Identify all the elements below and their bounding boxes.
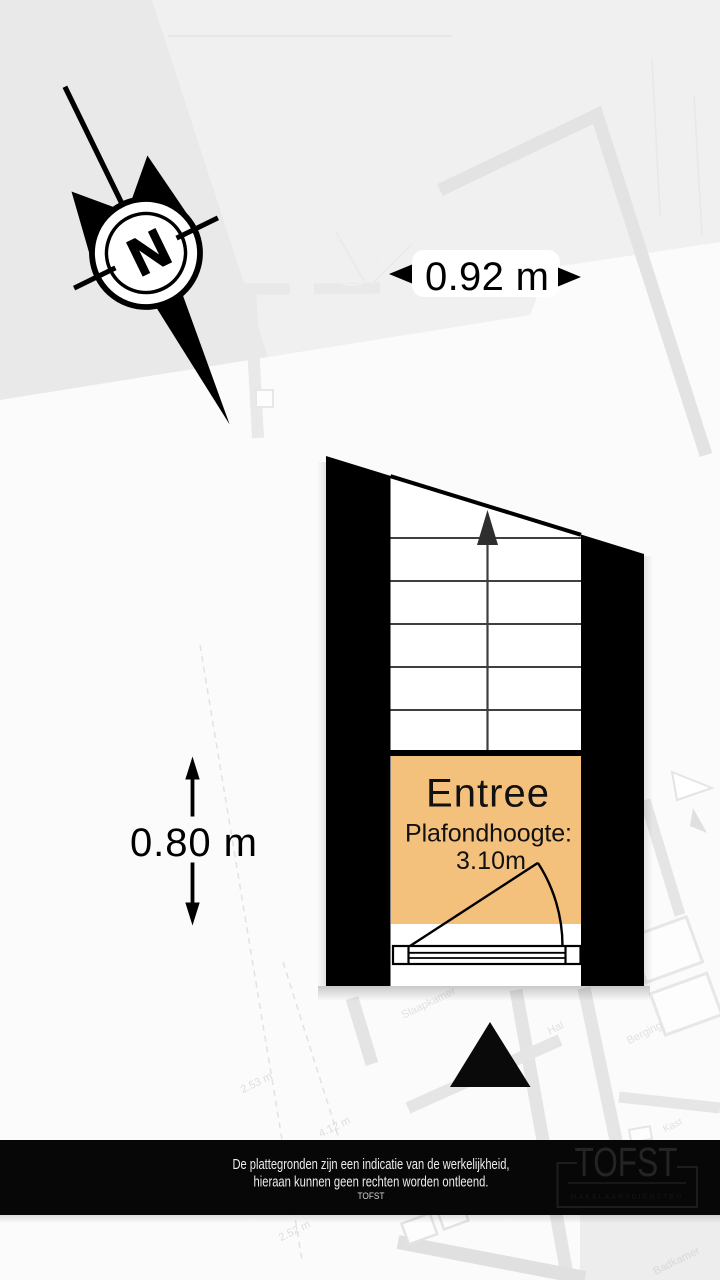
svg-text:MAKELAARSDIENSTEN: MAKELAARSDIENSTEN <box>571 1194 683 1201</box>
svg-text:Plafondhoogte:: Plafondhoogte: <box>405 820 572 848</box>
svg-text:Entree: Entree <box>426 772 549 816</box>
svg-text:De plattegronden zijn een indi: De plattegronden zijn een indicatie van … <box>233 1157 510 1173</box>
svg-text:3.10m: 3.10m <box>456 847 526 875</box>
svg-text:0.80 m: 0.80 m <box>130 821 257 865</box>
svg-text:hieraan kunnen geen rechten wo: hieraan kunnen geen rechten worden ontle… <box>254 1175 489 1191</box>
svg-text:0.92 m: 0.92 m <box>425 255 549 299</box>
svg-text:TOFST: TOFST <box>575 1139 678 1185</box>
svg-text:TOFST: TOFST <box>358 1191 385 1201</box>
